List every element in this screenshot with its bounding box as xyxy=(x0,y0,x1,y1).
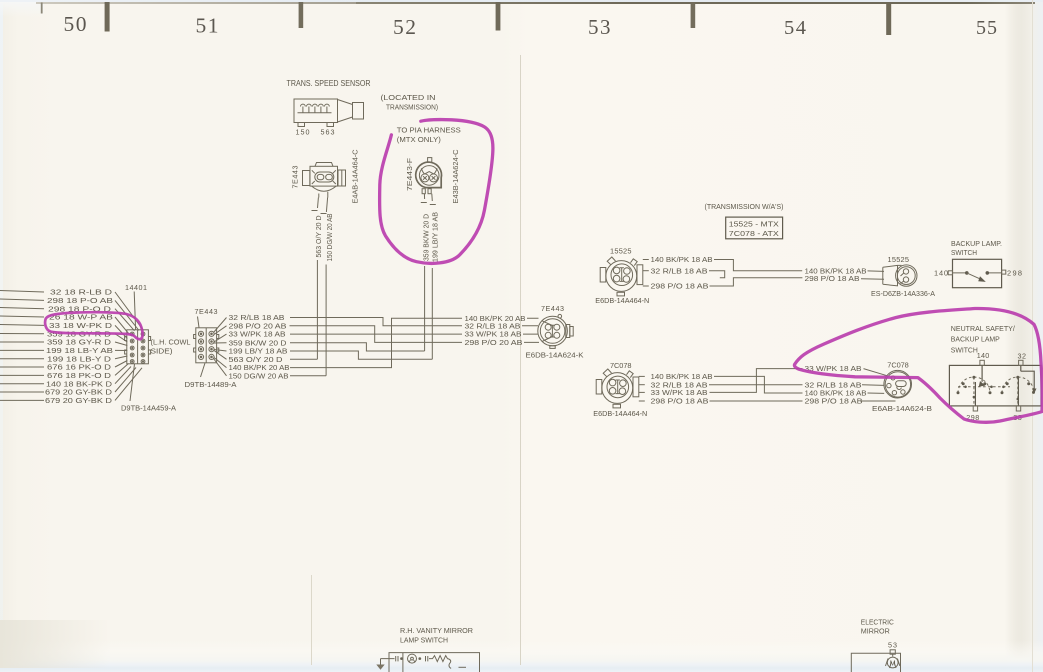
svg-text:BACKUP LAMP: BACKUP LAMP xyxy=(951,335,1000,344)
svg-text:140: 140 xyxy=(977,351,990,360)
svg-text:D9TB-14489-A: D9TB-14489-A xyxy=(185,380,237,389)
svg-text:ELECTRIC: ELECTRIC xyxy=(861,617,895,626)
svg-text:298 P/O 18 AB: 298 P/O 18 AB xyxy=(651,397,709,406)
svg-text:14401: 14401 xyxy=(125,283,147,292)
svg-text:7E443-F: 7E443-F xyxy=(405,157,414,191)
svg-text:140: 140 xyxy=(934,268,948,277)
svg-text:NEUTRAL SAFETY/: NEUTRAL SAFETY/ xyxy=(951,324,1016,333)
svg-text:E4AB-14A464-C: E4AB-14A464-C xyxy=(351,149,360,204)
svg-text:7E443: 7E443 xyxy=(195,307,218,316)
svg-text:LAMP SWITCH: LAMP SWITCH xyxy=(400,636,448,645)
svg-text:SIDE): SIDE) xyxy=(151,346,173,355)
svg-text:TRANSMISSION): TRANSMISSION) xyxy=(386,103,438,112)
svg-text:(L.H. COWL: (L.H. COWL xyxy=(151,337,191,346)
svg-text:298 P/O 18 AB: 298 P/O 18 AB xyxy=(805,397,863,406)
svg-text:150: 150 xyxy=(296,128,310,137)
svg-text:140 BK/PK 18 AB: 140 BK/PK 18 AB xyxy=(651,255,713,264)
svg-text:7C078 - ATX: 7C078 - ATX xyxy=(729,229,779,238)
svg-text:53: 53 xyxy=(588,15,611,39)
svg-text:298 P/O 20 AB: 298 P/O 20 AB xyxy=(465,338,523,347)
svg-text:15525 - MTX: 15525 - MTX xyxy=(729,220,779,229)
svg-text:E43B-14A624-C: E43B-14A624-C xyxy=(451,149,460,204)
svg-text:32: 32 xyxy=(1018,352,1027,361)
svg-text:E6DB-14A624-K: E6DB-14A624-K xyxy=(526,351,584,360)
svg-text:51: 51 xyxy=(196,14,219,38)
svg-text:150 DG/W 20 AB: 150 DG/W 20 AB xyxy=(229,371,289,380)
svg-text:(MTX ONLY): (MTX ONLY) xyxy=(397,135,441,144)
svg-text:150 DG/W 20 AB: 150 DG/W 20 AB xyxy=(325,213,334,261)
svg-text:359 BK/W 20 D: 359 BK/W 20 D xyxy=(421,214,430,261)
svg-text:SWITCH: SWITCH xyxy=(951,248,977,257)
svg-text:7C078: 7C078 xyxy=(887,360,909,369)
svg-text:E6AB-14A624-B: E6AB-14A624-B xyxy=(872,404,932,413)
svg-text:7E443: 7E443 xyxy=(291,166,300,189)
svg-text:563 O/Y 20 D: 563 O/Y 20 D xyxy=(314,216,323,258)
svg-text:ES-D6ZB-14A336-A: ES-D6ZB-14A336-A xyxy=(871,289,935,298)
svg-text:TO PIA HARNESS: TO PIA HARNESS xyxy=(397,125,461,134)
svg-text:298: 298 xyxy=(1007,268,1022,277)
svg-text:679 20 GY-BK D: 679 20 GY-BK D xyxy=(45,396,112,405)
svg-text:15525: 15525 xyxy=(888,255,910,264)
svg-text:TRANS. SPEED SENSOR: TRANS. SPEED SENSOR xyxy=(287,79,371,88)
svg-text:298 P/O 18 AB: 298 P/O 18 AB xyxy=(651,282,709,291)
svg-text:(TRANSMISSION W/A'S): (TRANSMISSION W/A'S) xyxy=(705,202,784,211)
svg-text:32 R/LB 18 AB: 32 R/LB 18 AB xyxy=(651,266,708,275)
svg-text:E6DB-14A464-N: E6DB-14A464-N xyxy=(593,409,647,418)
svg-text:199 LB/Y 18 AB: 199 LB/Y 18 AB xyxy=(430,212,439,262)
svg-text:52: 52 xyxy=(393,15,416,39)
svg-text:(LOCATED IN: (LOCATED IN xyxy=(381,93,436,102)
svg-text:563: 563 xyxy=(321,128,335,137)
svg-text:15525: 15525 xyxy=(610,247,632,256)
svg-text:BACKUP LAMP.: BACKUP LAMP. xyxy=(951,239,1002,248)
svg-text:R.H. VANITY MIRROR: R.H. VANITY MIRROR xyxy=(400,626,473,635)
svg-text:SWITCH: SWITCH xyxy=(951,345,978,354)
svg-text:E6DB-14A464-N: E6DB-14A464-N xyxy=(595,296,649,305)
svg-text:7E443: 7E443 xyxy=(541,304,564,313)
svg-text:7C078: 7C078 xyxy=(610,361,632,370)
svg-text:50: 50 xyxy=(64,12,87,36)
svg-text:MIRROR: MIRROR xyxy=(861,626,890,635)
svg-text:55: 55 xyxy=(976,17,997,39)
svg-text:M: M xyxy=(890,660,896,667)
svg-text:54: 54 xyxy=(784,17,806,39)
svg-text:D9TB-14A459-A: D9TB-14A459-A xyxy=(121,403,176,412)
svg-text:298 P/O 18 AB: 298 P/O 18 AB xyxy=(805,274,860,283)
svg-text:53: 53 xyxy=(888,641,897,650)
